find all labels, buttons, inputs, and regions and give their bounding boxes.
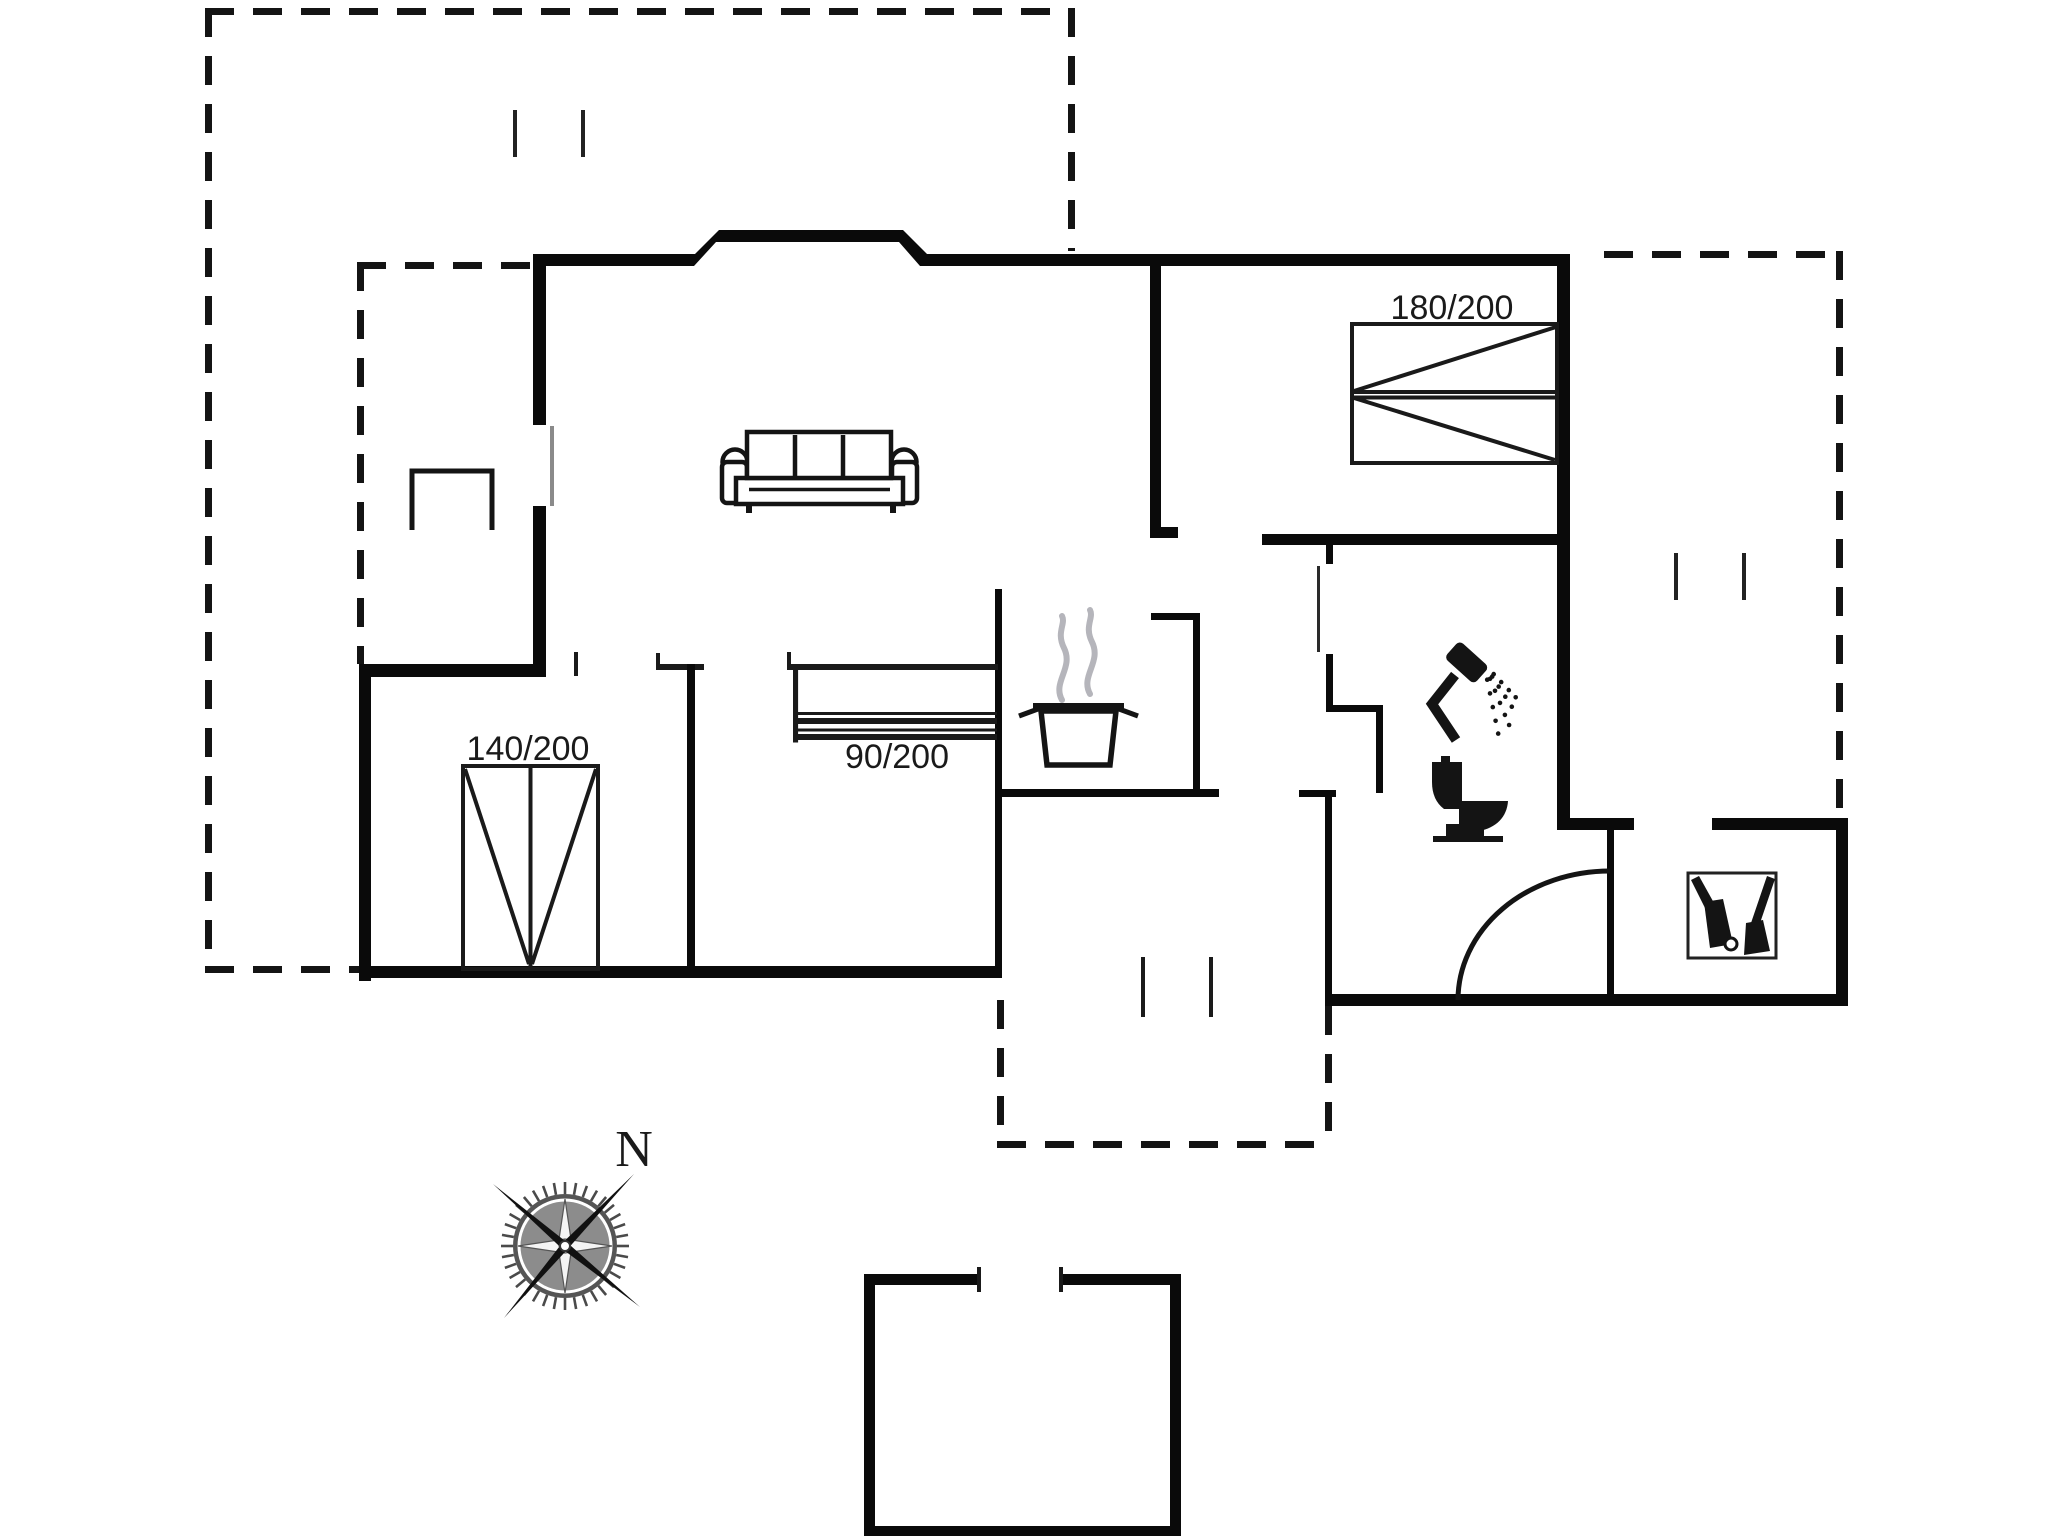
svg-text:180/200: 180/200 bbox=[1391, 289, 1514, 327]
svg-text:140/200: 140/200 bbox=[467, 730, 590, 768]
svg-text:90/200: 90/200 bbox=[845, 738, 949, 776]
svg-text:N: N bbox=[615, 1121, 653, 1178]
